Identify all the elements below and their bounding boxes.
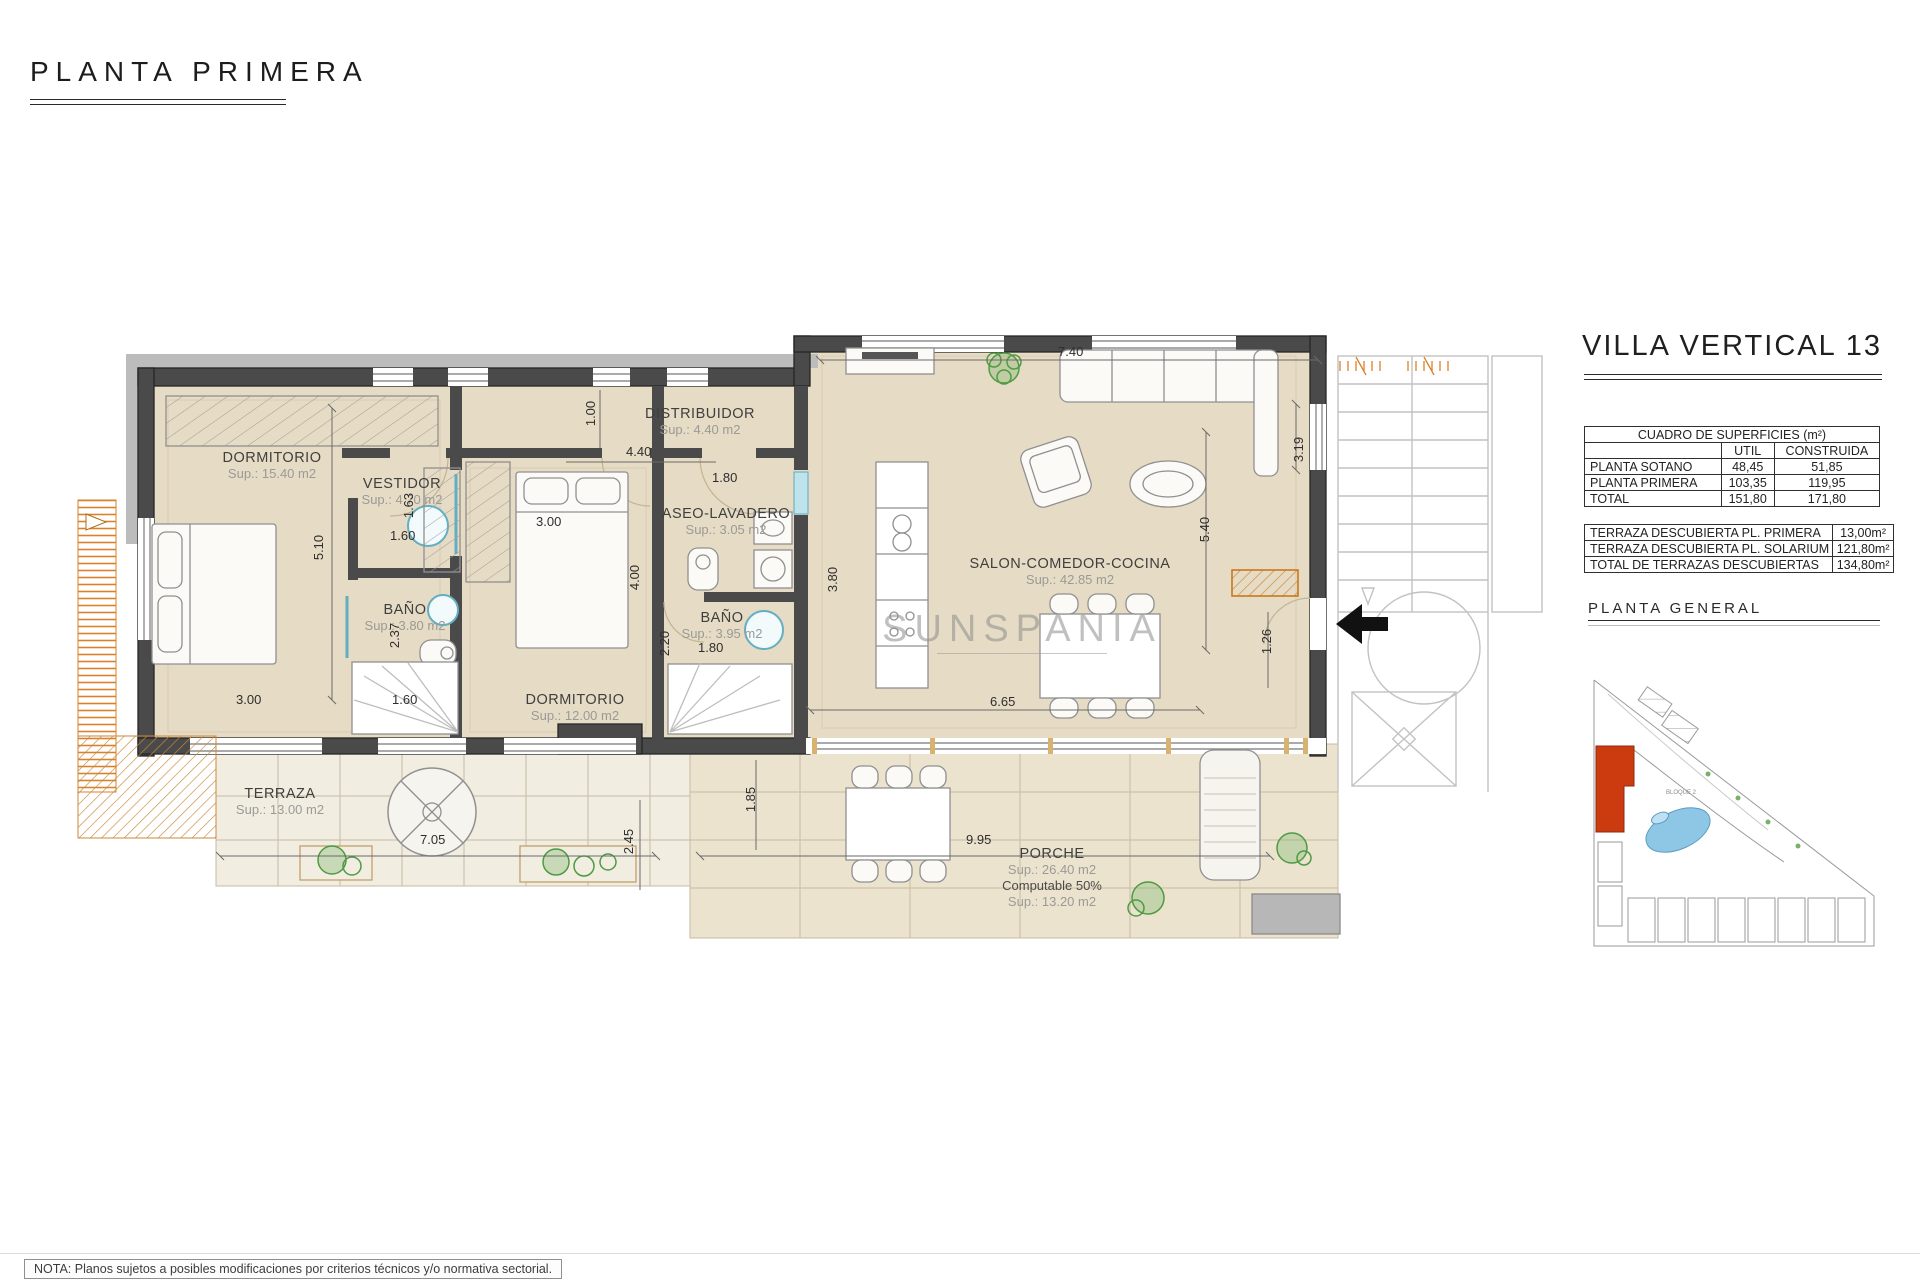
watermark-rule	[937, 653, 1107, 654]
dimension-label: 2.37	[387, 623, 402, 648]
highlighted-villa-block	[1596, 746, 1634, 832]
dimension-label: 3.19	[1291, 437, 1306, 462]
room-label-aseo-lavadero: ASEO-LAVADEROSup.: 3.05 m2	[662, 506, 790, 538]
table-row: TOTAL 151,80 171,80	[1585, 491, 1880, 507]
table-row: PLANTA PRIMERA 103,35 119,95	[1585, 475, 1880, 491]
pool	[1639, 799, 1717, 861]
watermark-text: SUNSPANIA	[872, 608, 1172, 651]
dimension-label: 1.80	[712, 470, 737, 485]
entrance-arrow-icon	[1336, 604, 1388, 644]
dimension-label: 5.10	[311, 535, 326, 560]
dimension-label: 1.80	[698, 640, 723, 655]
dimension-label: 2.45	[621, 829, 636, 854]
dimension-label: 5.40	[1197, 517, 1212, 542]
watermark: SUNSPANIA	[872, 608, 1172, 654]
dimension-label: 7.40	[1058, 344, 1083, 359]
site-plan-rule	[1588, 620, 1880, 626]
dimension-label: 1.60	[390, 528, 415, 543]
dimension-label: 1.60	[392, 692, 417, 707]
dimension-label: 4.00	[627, 565, 642, 590]
room-label-banyo-1: BAÑOSup.: 3.80 m2	[365, 602, 446, 634]
table-row: TERRAZA DESCUBIERTA PL. SOLARIUM 121,80m…	[1585, 541, 1894, 557]
room-label-terraza: TERRAZASup.: 13.00 m2	[236, 786, 324, 818]
dimension-label: 2.20	[657, 631, 672, 656]
room-label-dormitorio-2: DORMITORIOSup.: 12.00 m2	[526, 692, 625, 724]
terrace-table: TERRAZA DESCUBIERTA PL. PRIMERA 13,00m² …	[1584, 524, 1894, 573]
site-plan-block-label: BLOQUE 2	[1666, 790, 1697, 796]
room-label-salon: SALON-COMEDOR-COCINASup.: 42.85 m2	[970, 556, 1171, 588]
dimension-label: 1.00	[583, 401, 598, 426]
villa-plots	[1598, 842, 1865, 942]
dimension-label: 6.65	[990, 694, 1015, 709]
stairwell-structure	[1338, 356, 1542, 792]
terrace-tiles	[216, 744, 1338, 938]
site-plan-title: PLANTA GENERAL	[1588, 600, 1762, 617]
site-plan-drawing: BLOQUE 2	[1588, 634, 1898, 974]
footer-rule	[0, 1253, 1920, 1254]
room-label-banyo-2: BAÑOSup.: 3.95 m2	[682, 610, 763, 642]
col-util: UTIL	[1721, 443, 1774, 459]
room-label-distribuidor: DISTRIBUIDORSup.: 4.40 m2	[645, 406, 755, 438]
dimension-label: 7.05	[420, 832, 445, 847]
villa-title: VILLA VERTICAL 13	[1582, 330, 1882, 363]
dimension-label: 9.95	[966, 832, 991, 847]
surface-table-title: CUADRO DE SUPERFICIES (m²)	[1585, 427, 1880, 443]
dimension-label: 3.80	[825, 567, 840, 592]
wall-glass-panel	[794, 472, 808, 514]
floor-plan-sheet: PLANTA PRIMERA VILLA VERTICAL 13 CUADRO …	[0, 0, 1920, 1280]
dimension-label: 1.26	[1259, 629, 1274, 654]
table-row: TERRAZA DESCUBIERTA PL. PRIMERA 13,00m²	[1585, 525, 1894, 541]
villa-title-rule	[1584, 374, 1882, 380]
dimension-label: 3.00	[236, 692, 261, 707]
page-title-rule	[30, 99, 286, 105]
dimension-label: 3.00	[536, 514, 561, 529]
dimension-label: 4.40	[626, 444, 651, 459]
dimension-label: 1.85	[743, 787, 758, 812]
col-construida: CONSTRUIDA	[1774, 443, 1879, 459]
room-label-porche: PORCHESup.: 26.40 m2 Computable 50%Sup.:…	[1002, 846, 1102, 910]
table-row: TOTAL DE TERRAZAS DESCUBIERTAS 134,80m²	[1585, 557, 1894, 573]
railing-marks	[1340, 357, 1448, 375]
footer-note: NOTA: Planos sujetos a posibles modifica…	[24, 1259, 562, 1279]
room-label-dormitorio-1: DORMITORIOSup.: 15.40 m2	[223, 450, 322, 482]
page-title: PLANTA PRIMERA	[30, 56, 369, 88]
table-row: PLANTA SOTANO 48,45 51,85	[1585, 459, 1880, 475]
dimension-label: 1.63	[401, 493, 416, 518]
surface-table: CUADRO DE SUPERFICIES (m²) UTIL CONSTRUI…	[1584, 426, 1880, 507]
site-trees	[1706, 772, 1801, 849]
